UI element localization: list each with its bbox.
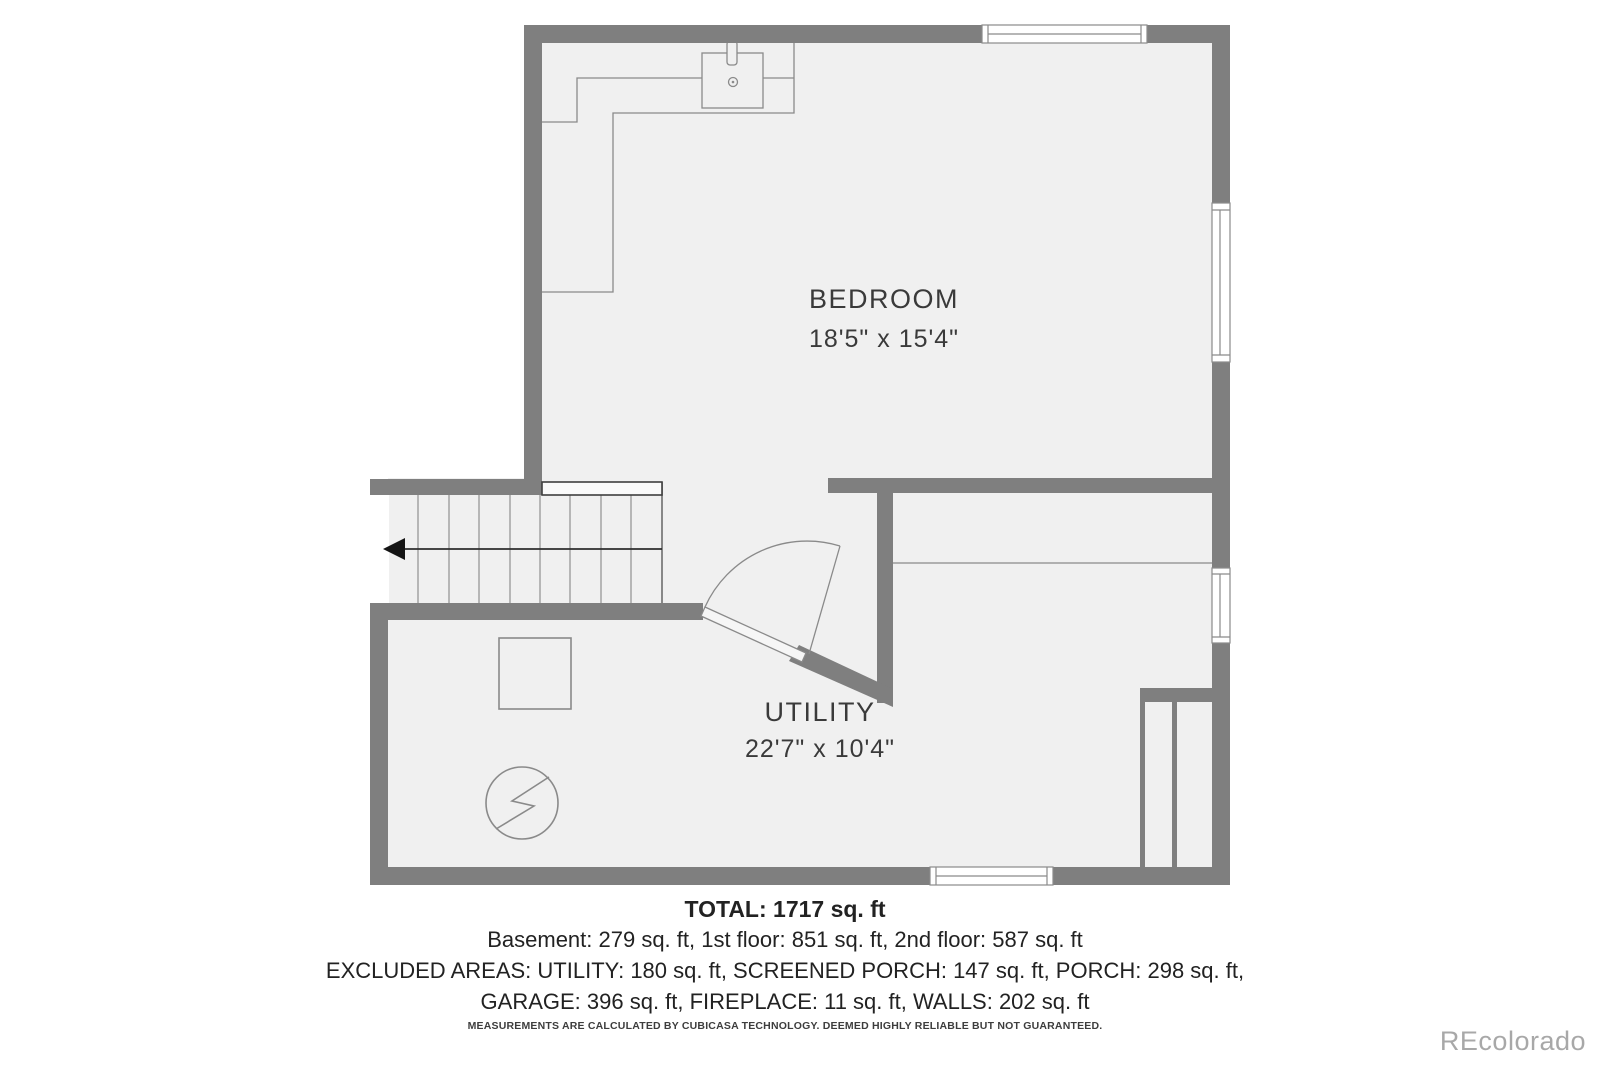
wall-interior-vertical [877,493,893,703]
utility-dimensions: 22'7" x 10'4" [745,735,895,763]
wall-right [1212,25,1230,885]
excluded-areas-text-1: EXCLUDED AREAS: UTILITY: 180 sq. ft, SCR… [0,958,1570,984]
floor-plan-svg: BEDROOM 18'5" x 15'4" UTILITY 22'7" x 10… [0,0,1600,900]
lower-floor [388,478,1213,868]
utility-label: UTILITY [764,697,875,727]
wall-bottom [370,867,1230,885]
window-bottom [930,867,1053,885]
floor-plan-page: { "floor_plan": { "rooms": [ { "name": "… [0,0,1600,1066]
wall-closet-divider-mid [1172,702,1177,867]
wall-stair-top [370,479,542,495]
disclaimer-text: MEASUREMENTS ARE CALCULATED BY CUBICASA … [0,1020,1570,1032]
wall-interior-horizontal [828,478,1230,493]
floor-areas-text: Basement: 279 sq. ft, 1st floor: 851 sq.… [0,927,1570,953]
excluded-areas-text-2: GARAGE: 396 sq. ft, FIREPLACE: 11 sq. ft… [0,989,1570,1015]
area-summary: TOTAL: 1717 sq. ft Basement: 279 sq. ft,… [0,896,1570,1032]
wall-bedroom-left [524,25,542,495]
bedroom-label: BEDROOM [809,284,959,314]
recolorado-watermark: REcolorado [1440,1026,1586,1057]
wall-closet-divider-left [1140,702,1145,867]
window-top [982,25,1147,43]
wall-closet-top [1140,688,1212,702]
wall-stair-bottom [370,603,703,620]
window-right-upper [1212,203,1230,362]
bedroom-dimensions: 18'5" x 15'4" [809,325,959,353]
bedroom-floor [541,43,1213,479]
window-right-lower [1212,568,1230,643]
total-area-text: TOTAL: 1717 sq. ft [0,896,1570,923]
stair-railing [542,482,662,495]
